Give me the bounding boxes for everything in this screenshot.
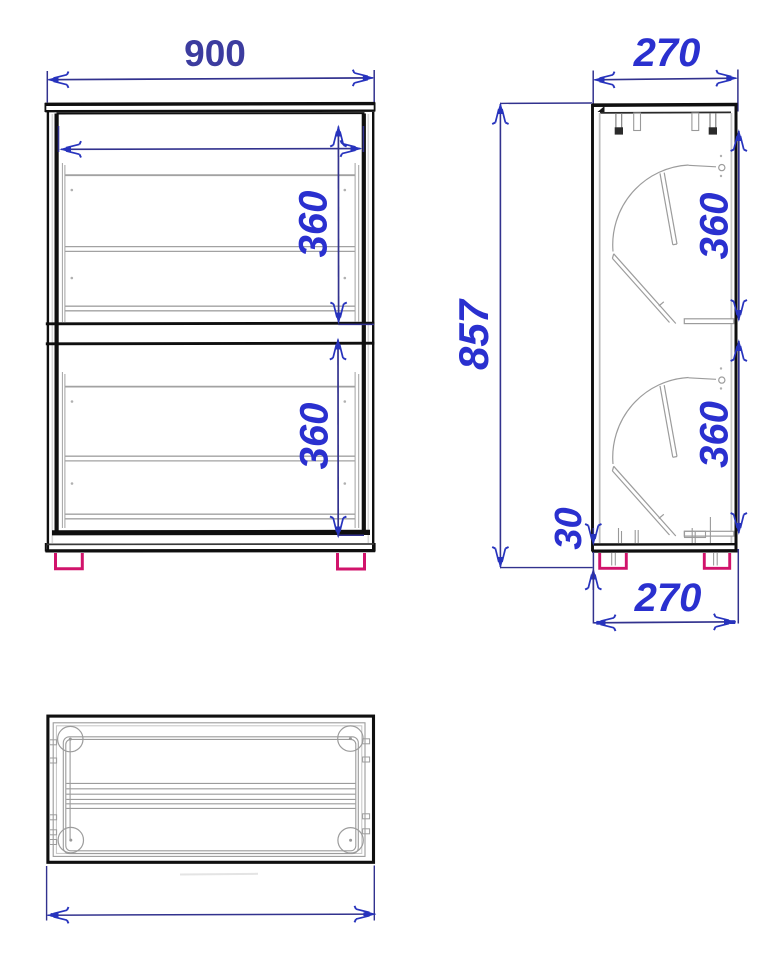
svg-text:270: 270: [633, 31, 701, 75]
svg-text:360: 360: [292, 191, 336, 258]
svg-text:360: 360: [693, 193, 737, 260]
svg-text:857: 857: [450, 298, 497, 370]
svg-text:360: 360: [693, 401, 737, 468]
svg-text:360: 360: [293, 403, 337, 470]
svg-text:270: 270: [634, 576, 702, 620]
svg-text:30: 30: [548, 507, 590, 549]
svg-text:900: 900: [184, 33, 246, 74]
